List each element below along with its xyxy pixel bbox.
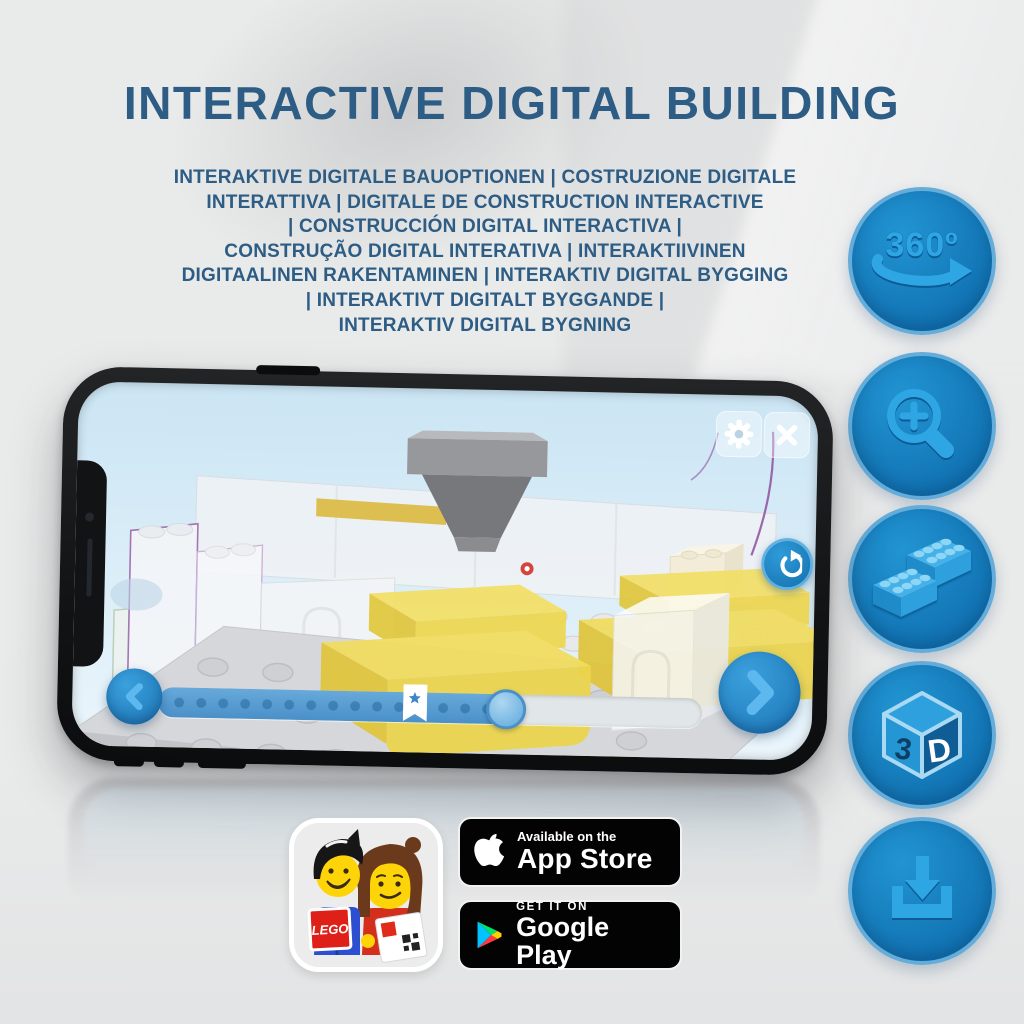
app-store-tagline: Available on the	[517, 830, 653, 844]
zoom-in-icon	[880, 384, 964, 468]
app-store-name: App Store	[517, 844, 653, 873]
google-play-badge[interactable]: GET IT ON Google Play	[458, 900, 682, 970]
subtitle-line: | CONSTRUCCIÓN DIGITAL INTERACTIVA |	[0, 215, 970, 240]
phone-power-button	[256, 365, 320, 375]
3d-view-icon: 3 D	[876, 687, 968, 783]
feature-brick-options	[848, 505, 996, 653]
lego-app-icon[interactable]: LEGO	[289, 818, 443, 972]
subtitle-line: CONSTRUÇÃO DIGITAL INTERATIVA | INTERAKT…	[0, 240, 970, 265]
progress-handle[interactable]	[486, 689, 527, 730]
phone-notch	[73, 460, 107, 667]
app-screen	[71, 381, 818, 760]
lego-logo-text: LEGO	[311, 921, 349, 938]
refresh-icon	[772, 549, 803, 580]
brick-steps-icon	[867, 531, 977, 627]
subtitle-line: INTERATTIVA | DIGITALE DE CONSTRUCTION I…	[0, 191, 970, 216]
subtitle-line: DIGITAALINEN RAKENTAMINEN | INTERAKTIV D…	[0, 264, 970, 289]
google-play-name: Google Play	[516, 913, 668, 970]
google-play-icon	[472, 916, 505, 954]
phone-volume-down-button	[198, 759, 246, 769]
google-play-tagline: GET IT ON	[516, 901, 668, 913]
earpiece-speaker	[86, 539, 92, 597]
lego-minifigures-illustration: LEGO	[294, 823, 438, 967]
feature-zoom	[848, 352, 996, 500]
subtitle-line: INTERAKTIVE DIGITALE BAUOPTIONEN | COSTR…	[0, 166, 970, 191]
close-icon	[774, 422, 801, 449]
front-camera	[85, 512, 94, 521]
3d-label-d: D	[926, 731, 954, 770]
bookmark-star-icon	[408, 691, 421, 704]
phone-reflection-screen	[84, 788, 804, 883]
subtitle: INTERAKTIVE DIGITALE BAUOPTIONEN | COSTR…	[0, 166, 970, 338]
gear-icon	[724, 419, 755, 450]
app-store-badge[interactable]: Available on the App Store	[458, 817, 682, 887]
close-button[interactable]	[763, 412, 810, 459]
phone-mute-switch	[114, 757, 144, 767]
subtitle-line: INTERAKTIV DIGITAL BYGNING	[0, 314, 970, 339]
chevron-right-icon	[740, 669, 779, 716]
chevron-left-icon	[121, 681, 148, 712]
feature-3d-view: 3 D	[848, 661, 996, 809]
phone-mockup	[56, 366, 834, 776]
download-icon	[880, 852, 964, 930]
phone-reflection	[68, 778, 820, 920]
subtitle-line: | INTERAKTIVT DIGITALT BYGGANDE |	[0, 289, 970, 314]
feature-360-rotation: 360º	[848, 187, 996, 335]
feature-download	[848, 817, 996, 965]
phone-volume-up-button	[154, 758, 184, 768]
settings-button[interactable]	[715, 411, 762, 458]
store-badges: Available on the App Store GET IT ON Goo…	[458, 817, 682, 970]
apple-icon	[472, 832, 506, 872]
page-title: INTERACTIVE DIGITAL BUILDING	[0, 76, 1024, 130]
360-rotation-icon	[870, 254, 974, 292]
